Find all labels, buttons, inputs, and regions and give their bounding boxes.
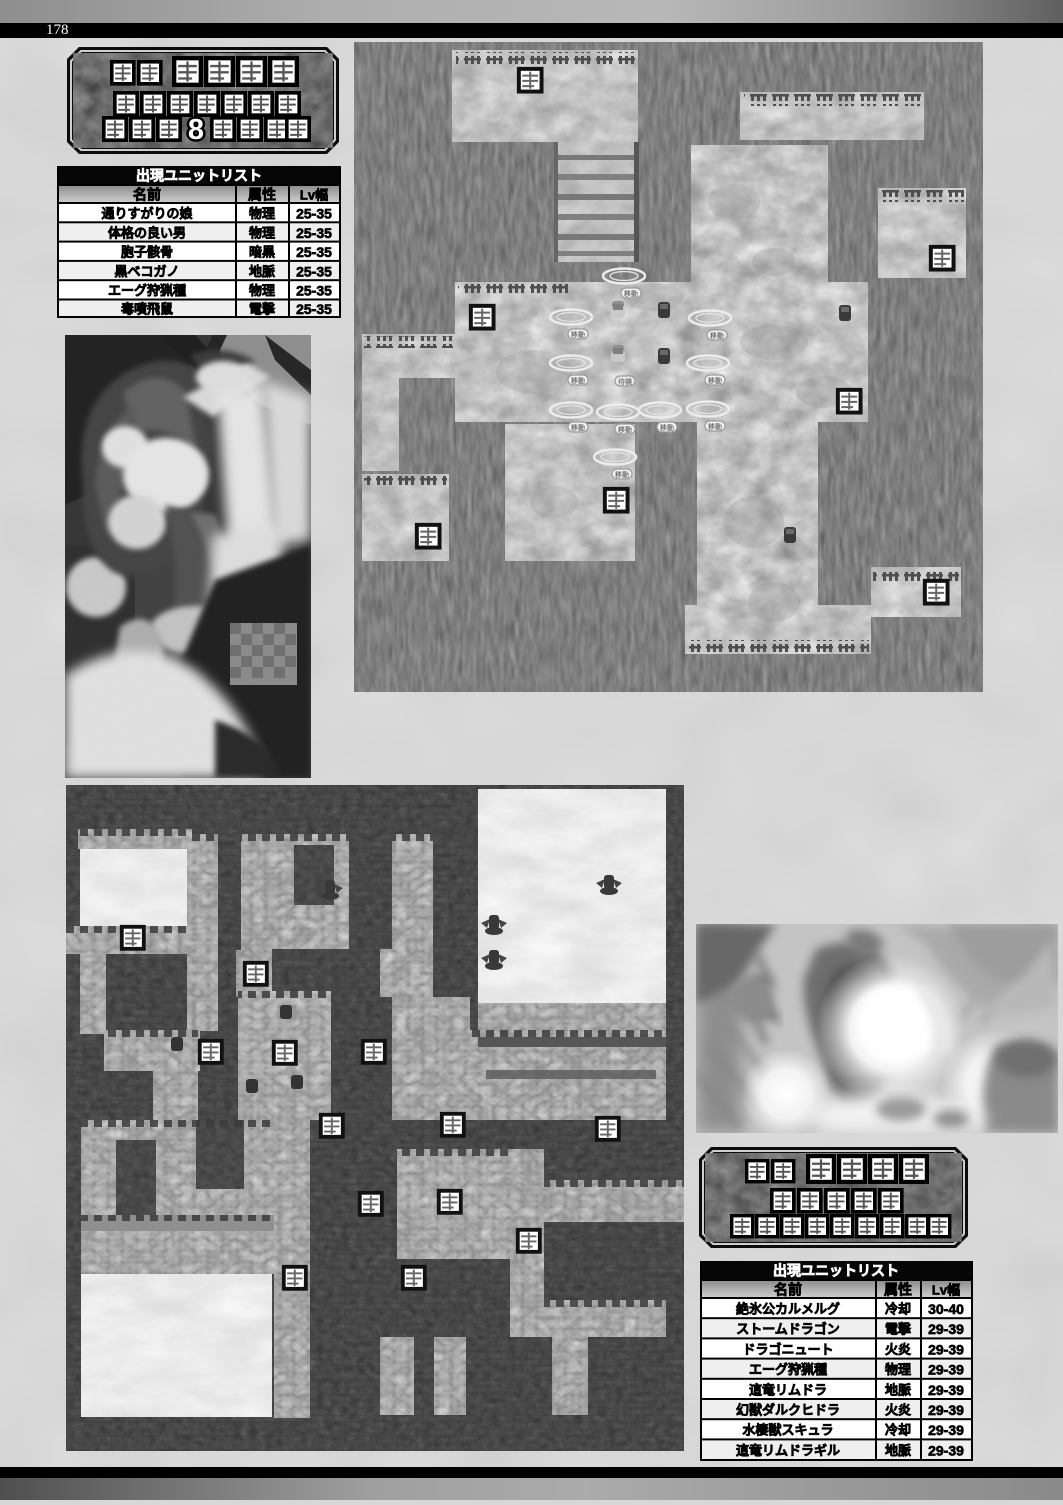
svg-text:通りすがりの娘: 通りすがりの娘 [101,206,193,221]
svg-text:火炎: 火炎 [885,1403,911,1418]
svg-text:地脈: 地脈 [249,264,275,279]
svg-text:黒ベコガノ: 黒ベコガノ [114,264,179,279]
svg-text:29-39: 29-39 [928,1321,964,1337]
svg-text:暗黒: 暗黒 [249,245,275,260]
svg-text:属性: 属性 [248,187,276,203]
svg-text:胞子骸骨: 胞子骸骨 [120,245,173,260]
svg-text:25-35: 25-35 [296,206,332,222]
svg-text:25-35: 25-35 [296,283,332,299]
svg-text:水棲獣スキュラ: 水棲獣スキュラ [742,1423,833,1438]
svg-text:Lv幅: Lv幅 [300,188,328,203]
svg-text:29-39: 29-39 [928,1341,964,1357]
svg-text:物理: 物理 [249,225,275,240]
svg-text:出現ユニットリスト: 出現ユニットリスト [773,1263,899,1279]
svg-text:29-39: 29-39 [928,1422,964,1438]
svg-text:物理: 物理 [249,206,275,221]
svg-text:名前: 名前 [774,1282,802,1298]
svg-text:8: 8 [188,114,204,146]
svg-text:毒噴飛鼠: 毒噴飛鼠 [121,302,173,317]
svg-text:Lv幅: Lv幅 [932,1283,960,1298]
svg-text:29-39: 29-39 [928,1402,964,1418]
svg-text:地脈: 地脈 [885,1443,911,1458]
svg-text:物理: 物理 [249,283,275,298]
svg-text:地脈: 地脈 [885,1382,911,1397]
svg-text:火炎: 火炎 [885,1342,911,1357]
svg-text:名前: 名前 [133,187,161,203]
svg-text:30-40: 30-40 [928,1301,964,1317]
svg-text:25-35: 25-35 [296,301,332,317]
svg-text:エーグ狩猟種: エーグ狩猟種 [108,283,186,298]
svg-text:体格の良い男: 体格の良い男 [108,225,186,240]
svg-text:幻獣ダルクヒドラ: 幻獣ダルクヒドラ [736,1403,840,1418]
svg-text:ドラゴニュート: ドラゴニュート [742,1342,833,1357]
svg-text:25-35: 25-35 [296,263,332,279]
svg-text:属性: 属性 [884,1282,912,1298]
svg-text:電撃: 電撃 [249,302,275,317]
svg-text:29-39: 29-39 [928,1382,964,1398]
svg-text:這竜リムドラギル: 這竜リムドラギル [736,1443,840,1458]
svg-text:絶氷公カルメルグ: 絶氷公カルメルグ [735,1302,840,1317]
svg-text:物理: 物理 [885,1362,911,1377]
svg-text:待機: 待機 [618,377,632,386]
svg-text:冷却: 冷却 [885,1302,911,1317]
svg-text:電撃: 電撃 [885,1322,911,1337]
svg-text:ストームドラゴン: ストームドラゴン [736,1322,840,1337]
svg-text:25-35: 25-35 [296,244,332,260]
svg-text:出現ユニットリスト: 出現ユニットリスト [136,168,262,184]
svg-text:25-35: 25-35 [296,225,332,241]
svg-text:29-39: 29-39 [928,1362,964,1378]
svg-text:29-39: 29-39 [928,1442,964,1458]
svg-text:エーグ狩猟種: エーグ狩猟種 [749,1362,827,1377]
svg-text:冷却: 冷却 [885,1423,911,1438]
svg-text:這竜リムドラ: 這竜リムドラ [749,1382,827,1397]
